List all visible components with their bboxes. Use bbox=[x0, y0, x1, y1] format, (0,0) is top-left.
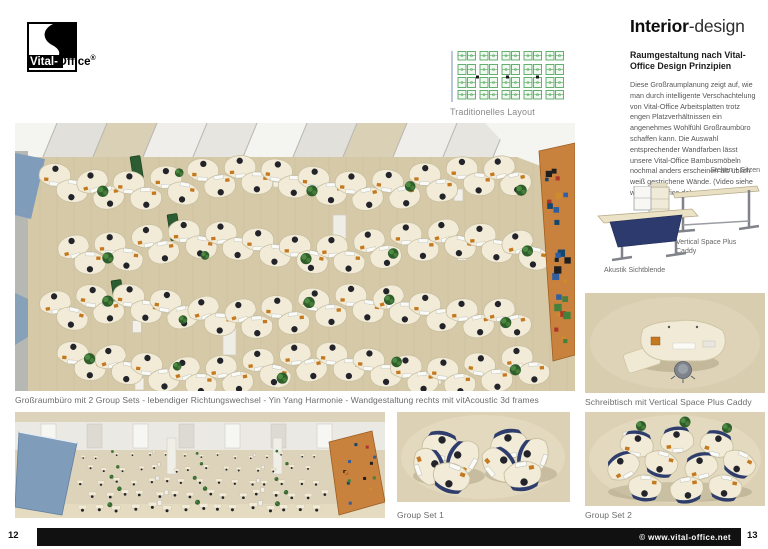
desk-topview-image bbox=[585, 293, 765, 393]
footer-bar: © www.vital-office.net bbox=[37, 528, 741, 546]
group-set-2-caption: Group Set 2 bbox=[585, 510, 765, 520]
registered-mark: ® bbox=[91, 55, 96, 62]
group-set-1-caption: Group Set 1 bbox=[397, 510, 570, 520]
acoustic-desk-image bbox=[596, 186, 702, 264]
logo-text-office: Office bbox=[58, 56, 91, 68]
group-set-2-image bbox=[585, 412, 765, 506]
traditional-layout-caption: Traditionelles Layout bbox=[450, 107, 570, 118]
traditional-layout-schematic bbox=[450, 50, 570, 104]
desk-topview-caption: Schreibtisch mit Vertical Space Plus Cad… bbox=[585, 397, 765, 407]
catalog-page: Vital-Office® Traditionelles Layout Inte… bbox=[0, 0, 768, 549]
overview-office-render bbox=[15, 412, 385, 518]
main-render-caption: Großraumbüro mit 2 Group Sets - lebendig… bbox=[15, 395, 585, 405]
page-number-left: 12 bbox=[8, 530, 19, 541]
vital-office-logo: Vital-Office® bbox=[27, 22, 137, 74]
logo-wordmark: Vital-Office® bbox=[30, 55, 96, 68]
traditional-layout-figure: Traditionelles Layout bbox=[450, 50, 570, 118]
title-light: -design bbox=[689, 16, 745, 36]
page-number-right: 13 bbox=[747, 530, 758, 541]
main-office-render bbox=[15, 123, 575, 391]
group-set-1-image bbox=[397, 412, 570, 502]
title-strong: Interior bbox=[630, 16, 689, 36]
acoustic-screen-caption: Akustik Sichtblende bbox=[604, 266, 704, 275]
footer-copyright: © www.vital-office.net bbox=[639, 533, 731, 542]
logo-text-vital: Vital- bbox=[30, 56, 58, 68]
article-heading: Raumgestaltung nach Vital-Office Design … bbox=[630, 50, 750, 73]
page-title: Interior-design bbox=[630, 16, 762, 37]
